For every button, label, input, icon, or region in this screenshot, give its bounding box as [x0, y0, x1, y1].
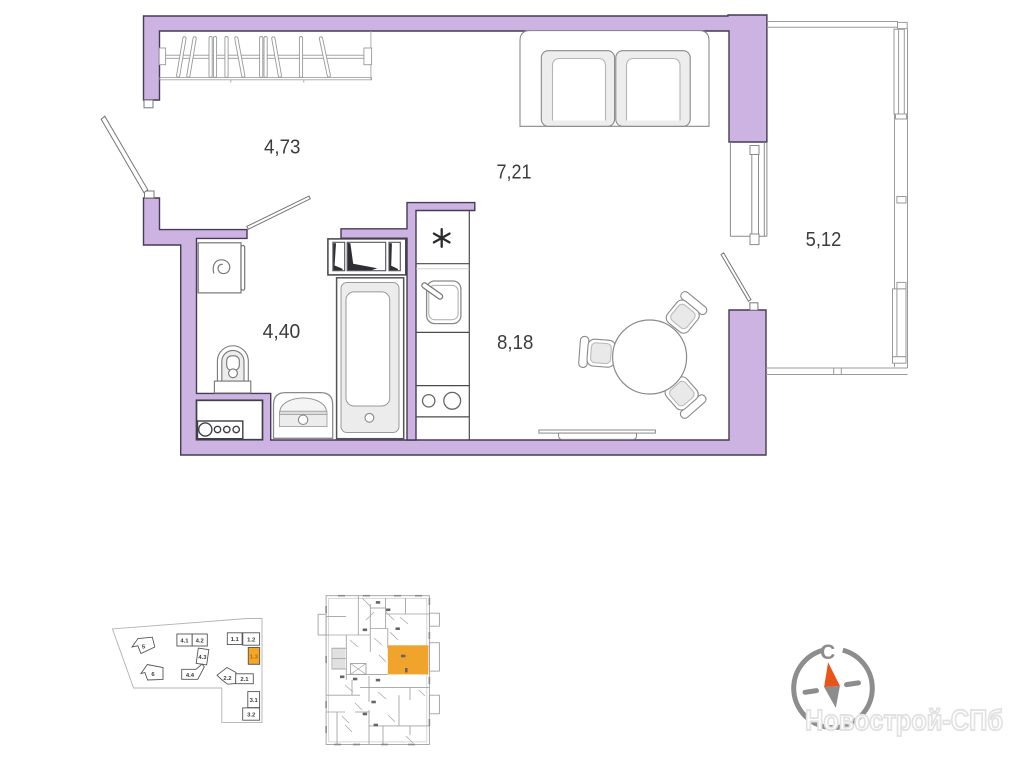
- svg-text:4.3: 4.3: [198, 655, 207, 661]
- svg-text:1.1: 1.1: [231, 637, 240, 643]
- svg-text:2.1: 2.1: [240, 677, 249, 683]
- svg-text:Новострой-СПб: Новострой-СПб: [805, 705, 1003, 737]
- svg-text:5,12: 5,12: [806, 228, 842, 251]
- svg-text:1.2: 1.2: [247, 638, 256, 644]
- svg-text:4.4: 4.4: [186, 673, 195, 679]
- svg-text:1.3: 1.3: [250, 655, 259, 661]
- svg-text:3.1: 3.1: [250, 698, 259, 704]
- svg-text:4,73: 4,73: [264, 135, 301, 158]
- svg-text:4.1: 4.1: [180, 639, 189, 645]
- svg-text:8,18: 8,18: [497, 331, 533, 354]
- svg-text:7,21: 7,21: [497, 161, 532, 184]
- svg-text:C: C: [820, 641, 835, 664]
- svg-text:4,40: 4,40: [263, 320, 301, 343]
- svg-text:4.2: 4.2: [196, 639, 205, 645]
- svg-text:3.2: 3.2: [247, 713, 256, 719]
- svg-text:2.2: 2.2: [223, 676, 232, 682]
